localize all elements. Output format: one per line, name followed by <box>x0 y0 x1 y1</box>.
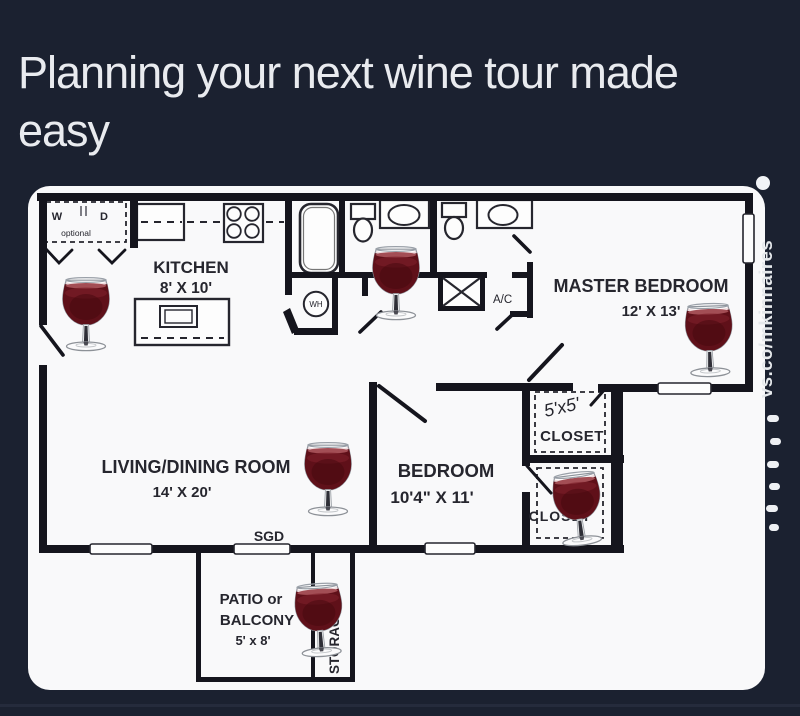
svg-text:KITCHEN: KITCHEN <box>153 258 229 277</box>
svg-text:SGD: SGD <box>254 528 284 544</box>
svg-text:LIVING/DINING ROOM: LIVING/DINING ROOM <box>102 457 291 477</box>
svg-text:5' x 8': 5' x 8' <box>235 633 270 648</box>
svg-text:CLOSET: CLOSET <box>540 428 604 445</box>
svg-text:WH: WH <box>309 300 323 309</box>
svg-text:PATIO or: PATIO or <box>220 591 283 608</box>
svg-text:10'4" X 11': 10'4" X 11' <box>390 488 473 507</box>
svg-text:14' X 20': 14' X 20' <box>153 484 212 501</box>
svg-text:BEDROOM: BEDROOM <box>398 460 495 481</box>
svg-text:optional: optional <box>61 228 91 238</box>
svg-text:A/C: A/C <box>493 294 512 306</box>
svg-text:BALCONY: BALCONY <box>220 612 294 629</box>
svg-text:vs.co/mkinnaires: vs.co/mkinnaires <box>755 240 776 398</box>
svg-text:D: D <box>100 211 108 223</box>
svg-text:MASTER BEDROOM: MASTER BEDROOM <box>554 276 729 296</box>
svg-text:12' X 13': 12' X 13' <box>622 303 681 320</box>
svg-text:W: W <box>52 211 63 223</box>
svg-text:8' X 10': 8' X 10' <box>160 280 212 297</box>
